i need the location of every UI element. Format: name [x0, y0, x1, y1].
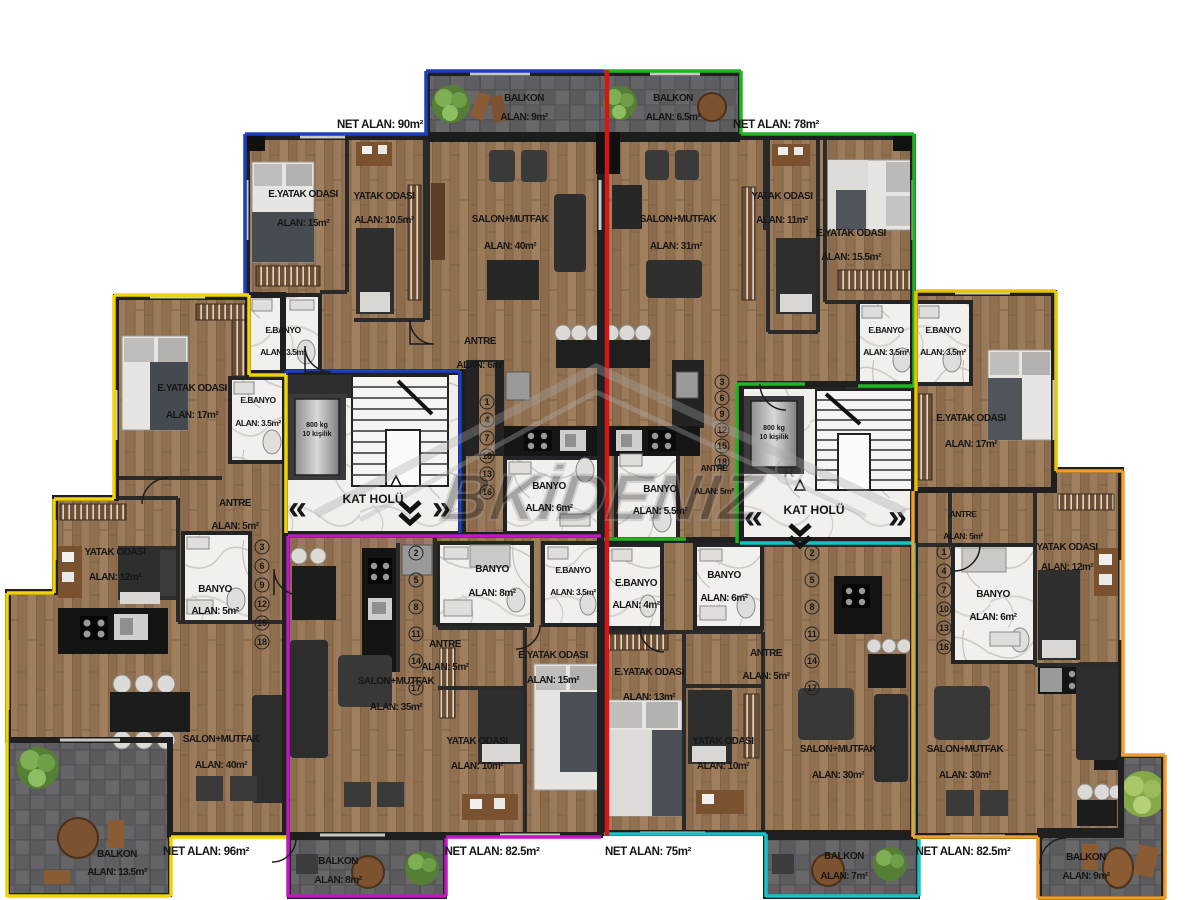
svg-text:10: 10 [939, 604, 949, 614]
svg-text:ALAN: 10m²: ALAN: 10m² [451, 761, 504, 772]
svg-text:6: 6 [719, 393, 724, 403]
svg-text:KAT HOLÜ: KAT HOLÜ [342, 491, 403, 506]
svg-text:BALKON: BALKON [1066, 852, 1106, 863]
svg-text:NET ALAN: 96m²: NET ALAN: 96m² [163, 846, 250, 858]
svg-text:8: 8 [413, 602, 418, 612]
svg-text:BALKON: BALKON [97, 849, 137, 860]
svg-text:13: 13 [939, 623, 949, 633]
svg-text:BANYO: BANYO [707, 570, 741, 581]
svg-text:BANYO: BANYO [643, 484, 677, 495]
svg-text:BALKON: BALKON [504, 93, 544, 104]
svg-text:ALAN: 8m²: ALAN: 8m² [468, 588, 516, 599]
svg-text:10 kişilik: 10 kişilik [302, 431, 331, 438]
svg-text:18: 18 [257, 637, 267, 647]
svg-text:SALON+MUTFAK: SALON+MUTFAK [800, 744, 878, 755]
svg-text:SALON+MUTFAK: SALON+MUTFAK [927, 744, 1005, 755]
svg-text:ALAN: 12m²: ALAN: 12m² [89, 572, 142, 583]
svg-text:E.BANYO: E.BANYO [555, 565, 591, 575]
svg-text:YATAK ODASI: YATAK ODASI [1037, 542, 1099, 553]
svg-text:BANYO: BANYO [532, 481, 566, 492]
svg-text:YATAK ODASI: YATAK ODASI [693, 736, 755, 747]
svg-text:BANYO: BANYO [475, 564, 509, 575]
svg-text:YATAK ODASI: YATAK ODASI [354, 191, 416, 202]
svg-text:ALAN: 30m²: ALAN: 30m² [939, 770, 992, 781]
svg-text:ALAN: 6m²: ALAN: 6m² [525, 503, 573, 514]
svg-text:ALAN: 10m²: ALAN: 10m² [697, 761, 750, 772]
svg-text:14: 14 [411, 656, 421, 666]
svg-text:ALAN: 31m²: ALAN: 31m² [650, 241, 703, 252]
svg-text:BALKON: BALKON [318, 856, 358, 867]
svg-text:ANTRE: ANTRE [464, 336, 497, 347]
svg-text:NET ALAN: 82.5m²: NET ALAN: 82.5m² [445, 846, 540, 858]
svg-text:ALAN: 5m²: ALAN: 5m² [191, 606, 239, 617]
svg-text:NET ALAN: 78m²: NET ALAN: 78m² [733, 119, 820, 131]
svg-text:ANTRE: ANTRE [750, 648, 783, 659]
svg-text:SALON+MUTFAK: SALON+MUTFAK [472, 214, 550, 225]
svg-text:ALAN: 13.5m²: ALAN: 13.5m² [87, 867, 148, 878]
svg-text:ALAN: 6m²: ALAN: 6m² [456, 360, 504, 371]
svg-text:E.BANYO: E.BANYO [615, 578, 658, 589]
svg-text:7: 7 [941, 585, 946, 595]
svg-text:9: 9 [719, 409, 724, 419]
svg-text:KAT HOLÜ: KAT HOLÜ [783, 502, 844, 517]
svg-text:ANTRE: ANTRE [701, 463, 729, 473]
svg-text:7: 7 [484, 433, 489, 443]
svg-text:ALAN: 12m²: ALAN: 12m² [1041, 562, 1094, 573]
svg-text:SALON+MUTFAK: SALON+MUTFAK [640, 214, 718, 225]
svg-text:ALAN: 13m²: ALAN: 13m² [623, 692, 676, 703]
svg-text:ALAN: 10.5m²: ALAN: 10.5m² [354, 215, 415, 226]
svg-text:ANTRE: ANTRE [950, 509, 978, 519]
svg-text:ALAN: 3.5m²: ALAN: 3.5m² [863, 347, 909, 357]
svg-text:E.YATAK ODASI: E.YATAK ODASI [614, 667, 684, 678]
svg-text:R: R [784, 464, 795, 481]
svg-text:ALAN: 3.5m²: ALAN: 3.5m² [920, 347, 966, 357]
svg-text:800 kg: 800 kg [306, 422, 328, 429]
svg-text:ALAN: 9m²: ALAN: 9m² [500, 112, 548, 123]
svg-text:ALAN: 15.5m²: ALAN: 15.5m² [821, 252, 882, 263]
svg-text:4: 4 [941, 566, 946, 576]
svg-text:3: 3 [719, 377, 724, 387]
svg-text:15: 15 [257, 618, 267, 628]
svg-text:ALAN: 3.5m²: ALAN: 3.5m² [260, 347, 306, 357]
svg-text:2: 2 [809, 548, 814, 558]
svg-text:8: 8 [809, 602, 814, 612]
svg-text:ANTRE: ANTRE [429, 639, 462, 650]
svg-text:YATAK ODASI: YATAK ODASI [752, 191, 814, 202]
svg-text:E.BANYO: E.BANYO [240, 395, 276, 405]
svg-text:«: « [288, 489, 307, 527]
svg-text:ALAN: 3.5m²: ALAN: 3.5m² [235, 418, 281, 428]
svg-text:E.YATAK ODASI: E.YATAK ODASI [268, 189, 338, 200]
svg-text:ALAN: 15m²: ALAN: 15m² [527, 675, 580, 686]
svg-text:10 kişilik: 10 kişilik [759, 434, 788, 441]
svg-text:SALON+MUTFAK: SALON+MUTFAK [183, 734, 261, 745]
svg-text:17: 17 [807, 683, 817, 693]
svg-text:ALAN: 40m²: ALAN: 40m² [195, 760, 248, 771]
svg-text:YATAK ODASI: YATAK ODASI [85, 547, 147, 558]
svg-text:NET ALAN: 90m²: NET ALAN: 90m² [337, 119, 424, 131]
svg-text:16: 16 [939, 642, 949, 652]
svg-text:ANTRE: ANTRE [219, 498, 252, 509]
svg-text:E.YATAK ODASI: E.YATAK ODASI [816, 228, 886, 239]
svg-text:9: 9 [259, 580, 264, 590]
svg-text:ALAN: 5m²: ALAN: 5m² [421, 662, 469, 673]
svg-text:BALKON: BALKON [824, 851, 864, 862]
svg-text:5: 5 [809, 575, 814, 585]
svg-text:ALAN: 6.5m²: ALAN: 6.5m² [646, 112, 702, 123]
svg-text:ALAN: 4m²: ALAN: 4m² [612, 600, 660, 611]
svg-text:2: 2 [413, 548, 418, 558]
svg-text:ALAN: 15m²: ALAN: 15m² [277, 218, 330, 229]
svg-text:ALAN: 6m²: ALAN: 6m² [969, 612, 1017, 623]
svg-text:3: 3 [259, 542, 264, 552]
svg-text:6: 6 [259, 561, 264, 571]
svg-text:ALAN: 5m²: ALAN: 5m² [694, 486, 734, 496]
svg-text:BALKON: BALKON [653, 93, 693, 104]
svg-text:11: 11 [807, 629, 817, 639]
svg-text:E.BANYO: E.BANYO [265, 325, 301, 335]
svg-text:E.YATAK ODASI: E.YATAK ODASI [518, 650, 588, 661]
svg-text:BANYO: BANYO [198, 584, 232, 595]
svg-text:ALAN: 8m²: ALAN: 8m² [314, 875, 362, 886]
svg-text:ALAN: 17m²: ALAN: 17m² [945, 439, 998, 450]
svg-text:SALON+MUTFAK: SALON+MUTFAK [358, 676, 436, 687]
svg-text:14: 14 [807, 656, 817, 666]
svg-text:BANYO: BANYO [976, 589, 1010, 600]
svg-text:ALAN: 5m²: ALAN: 5m² [211, 521, 259, 532]
svg-text:YATAK ODASI: YATAK ODASI [447, 736, 509, 747]
svg-text:ALAN: 5.5m²: ALAN: 5.5m² [633, 506, 689, 517]
svg-text:ALAN: 35m²: ALAN: 35m² [370, 702, 423, 713]
svg-text:ALAN: 9m²: ALAN: 9m² [1062, 871, 1110, 882]
svg-text:ALAN: 6m²: ALAN: 6m² [700, 593, 748, 604]
svg-text:12: 12 [257, 599, 267, 609]
svg-text:ALAN: 11m²: ALAN: 11m² [756, 215, 809, 226]
svg-text:E.YATAK ODASI: E.YATAK ODASI [936, 413, 1006, 424]
svg-text:ALAN: 5m²: ALAN: 5m² [943, 531, 983, 541]
svg-text:ALAN: 30m²: ALAN: 30m² [812, 770, 865, 781]
svg-text:E.BANYO: E.BANYO [868, 325, 904, 335]
svg-text:800 kg: 800 kg [763, 425, 785, 432]
svg-text:1: 1 [484, 397, 489, 407]
svg-text:ALAN: 40m²: ALAN: 40m² [484, 241, 537, 252]
svg-text:NET ALAN: 75m²: NET ALAN: 75m² [605, 846, 692, 858]
svg-text:1: 1 [941, 547, 946, 557]
svg-text:NET ALAN: 82.5m²: NET ALAN: 82.5m² [916, 846, 1011, 858]
svg-text:11: 11 [411, 629, 421, 639]
svg-text:5: 5 [413, 575, 418, 585]
svg-text:E.YATAK ODASI: E.YATAK ODASI [157, 383, 227, 394]
svg-text:ALAN: 3.5m²: ALAN: 3.5m² [550, 587, 596, 597]
svg-text:ALAN: 17m²: ALAN: 17m² [166, 410, 219, 421]
svg-text:ALAN: 7m²: ALAN: 7m² [820, 871, 868, 882]
svg-text:ALAN: 5m²: ALAN: 5m² [742, 671, 790, 682]
svg-text:E.BANYO: E.BANYO [925, 325, 961, 335]
